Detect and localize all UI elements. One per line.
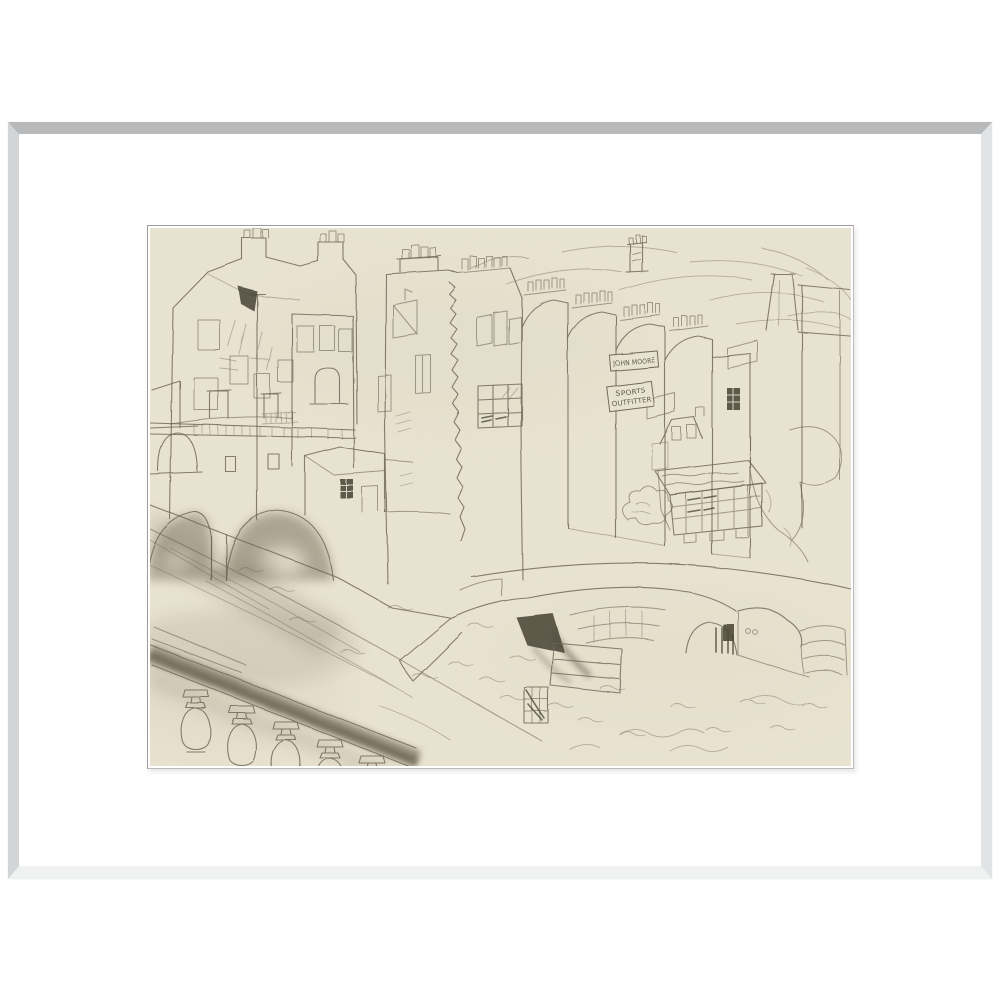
- print-paper: JOHN MOORE SPORTS OUTFITTER: [147, 225, 854, 769]
- shop-sign-sports-outfitter: SPORTS OUTFITTER: [607, 381, 655, 411]
- artwork-drawing: JOHN MOORE SPORTS OUTFITTER: [150, 228, 851, 766]
- product-photo: JOHN MOORE SPORTS OUTFITTER: [0, 0, 1003, 1003]
- mat-board: JOHN MOORE SPORTS OUTFITTER: [19, 134, 981, 866]
- picture-frame: JOHN MOORE SPORTS OUTFITTER: [8, 122, 992, 879]
